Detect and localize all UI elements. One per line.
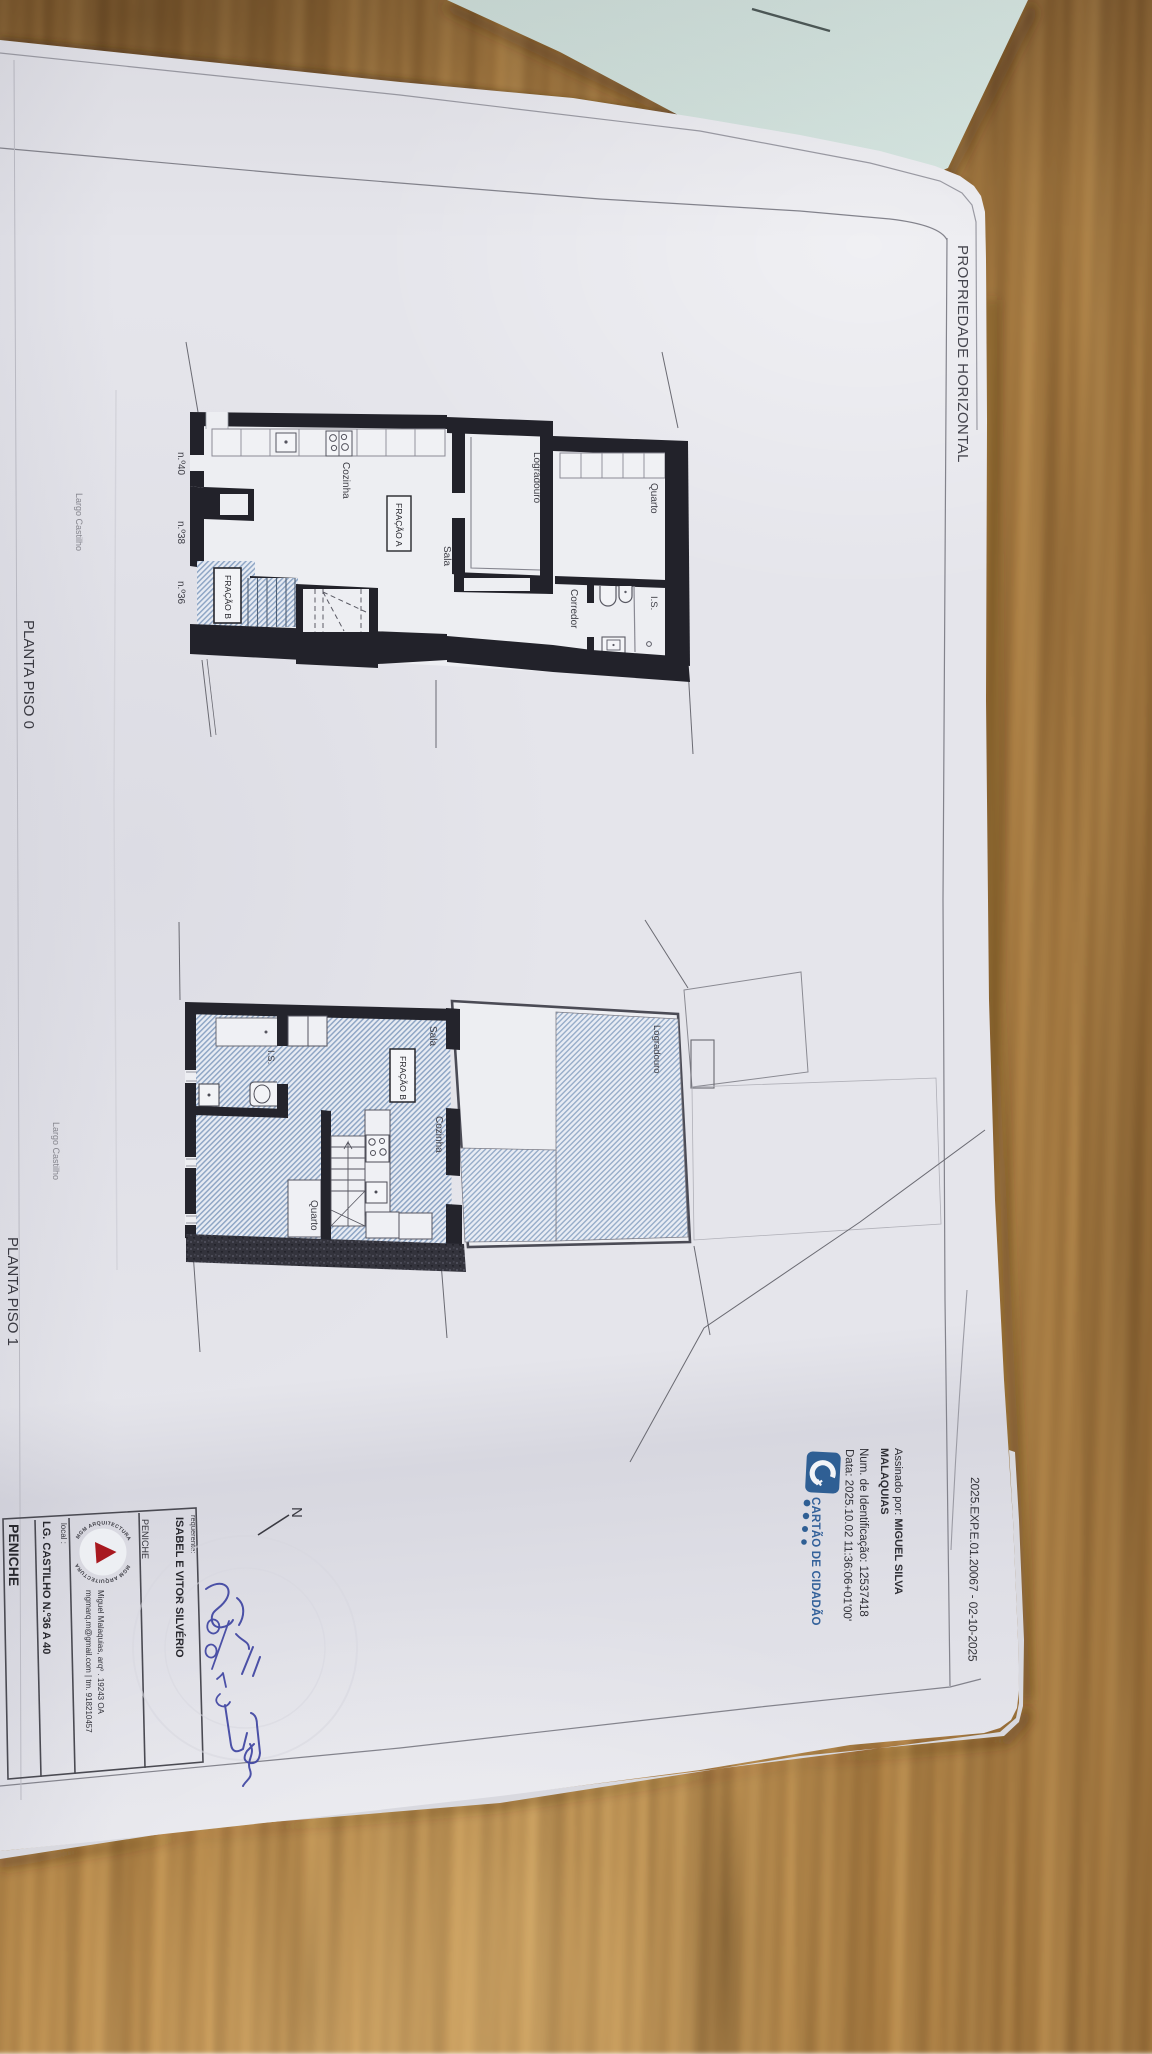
svg-text:Cozinha: Cozinha xyxy=(340,462,351,499)
svg-text:N: N xyxy=(288,1507,305,1518)
svg-text:Quarto: Quarto xyxy=(308,1200,319,1231)
svg-text:Data: 2025.10.02 11:36:06+01'0: Data: 2025.10.02 11:36:06+01'00' xyxy=(841,1449,855,1621)
svg-text:FRAÇÃO B: FRAÇÃO B xyxy=(398,1056,408,1100)
svg-text:Logradouro: Logradouro xyxy=(651,1025,662,1074)
svg-text:n.º38: n.º38 xyxy=(175,521,186,545)
svg-text:n.º40: n.º40 xyxy=(175,452,186,476)
svg-text:MALAQUIAS: MALAQUIAS xyxy=(878,1448,890,1515)
svg-text:n.º36: n.º36 xyxy=(175,581,186,605)
svg-text:Assinado por: MIGUEL SILVA: Assinado por: MIGUEL SILVA xyxy=(892,1448,904,1595)
svg-text:ISABEL E VITOR SILVÉRIO: ISABEL E VITOR SILVÉRIO xyxy=(173,1517,186,1658)
svg-text:CARTÃO DE CIDADÃO: CARTÃO DE CIDADÃO xyxy=(809,1497,822,1626)
svg-text:Largo Castilho: Largo Castilho xyxy=(51,1122,61,1180)
svg-text:PLANTA PISO 1: PLANTA PISO 1 xyxy=(4,1237,21,1346)
svg-text:Corredor: Corredor xyxy=(568,589,579,629)
svg-text:Miguel Malaquias, arqº . 192: Miguel Malaquias, arqº . 19243 OA xyxy=(96,1590,105,1715)
svg-text:I.S.: I.S. xyxy=(265,1050,276,1064)
svg-text:local :: local : xyxy=(59,1523,68,1544)
svg-text:Quarto: Quarto xyxy=(648,483,659,514)
svg-text:PENICHE: PENICHE xyxy=(6,1524,22,1586)
svg-text:LG. CASTILHO N.º36 A 40: LG. CASTILHO N.º36 A 40 xyxy=(40,1521,52,1654)
svg-text:Sala: Sala xyxy=(441,546,452,566)
svg-text:PLANTA PISO 0: PLANTA PISO 0 xyxy=(20,620,37,729)
svg-text:Sala: Sala xyxy=(427,1026,438,1046)
svg-text:FRAÇÃO B: FRAÇÃO B xyxy=(223,575,233,619)
svg-text:I.S.: I.S. xyxy=(648,596,659,610)
svg-text:FRAÇÃO A: FRAÇÃO A xyxy=(394,503,404,547)
svg-text:Largo Castilho: Largo Castilho xyxy=(74,493,84,551)
svg-text:2025.EXP.E.01.20067 - 02-10-20: 2025.EXP.E.01.20067 - 02-10-2025 xyxy=(965,1477,982,1662)
svg-text:Cozinha: Cozinha xyxy=(433,1116,444,1153)
svg-text:Num. de Identificação: 1253741: Num. de Identificação: 12537418 xyxy=(857,1448,869,1617)
svg-text:PROPRIEDADE HORIZONTAL: PROPRIEDADE HORIZONTAL xyxy=(954,245,971,463)
svg-text:PENICHE: PENICHE xyxy=(140,1519,150,1559)
svg-text:mgmarq.m@gmail.com | tm. 918: mgmarq.m@gmail.com | tm. 918210457 xyxy=(84,1590,93,1733)
